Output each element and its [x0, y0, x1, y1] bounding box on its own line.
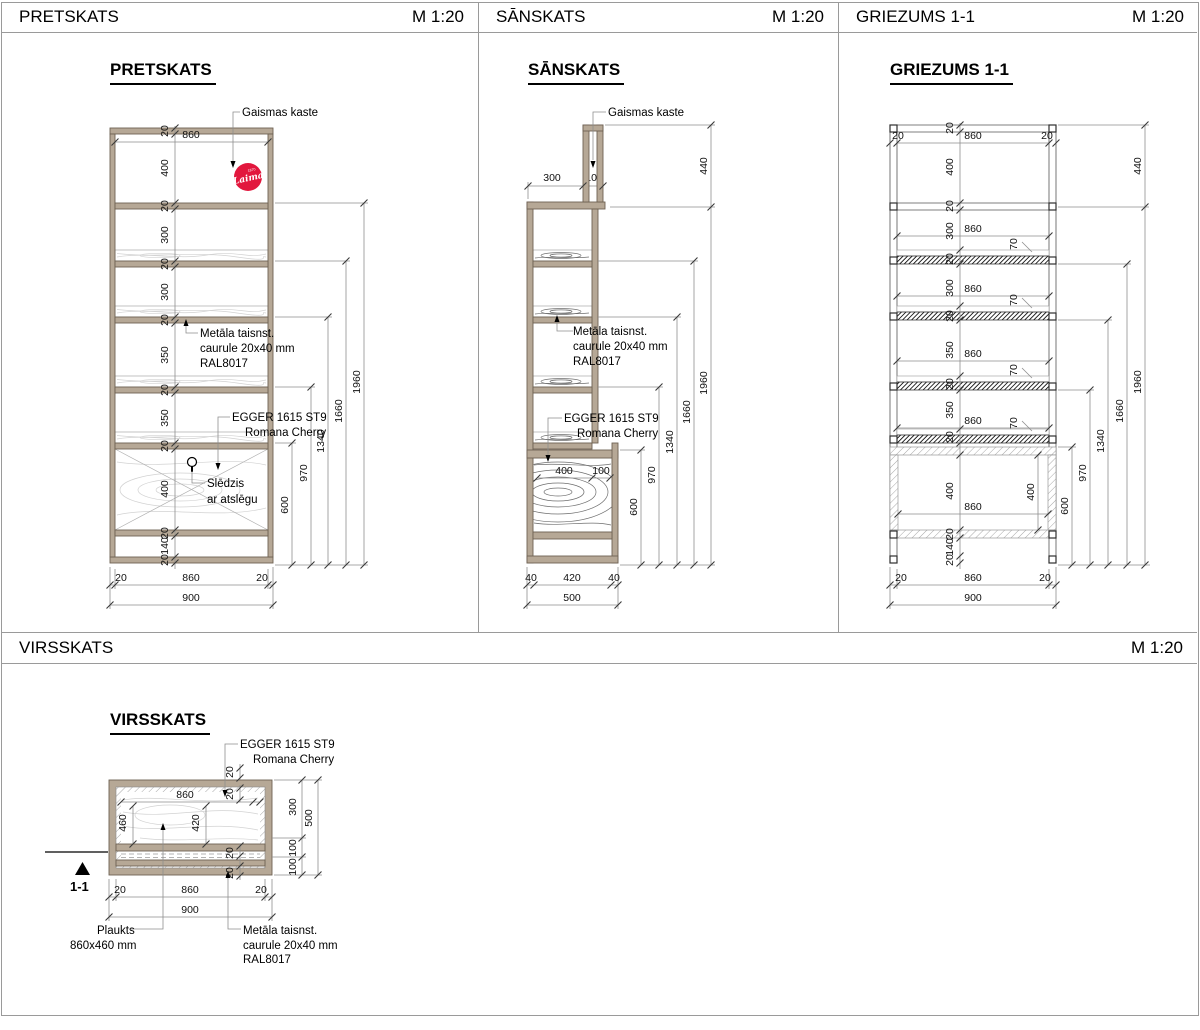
dim-label: 20	[224, 766, 236, 778]
annotation-egger: EGGER 1615 ST9	[240, 739, 335, 751]
annotation-metala: Metāla taisnst.	[200, 328, 274, 340]
dim-label: 300	[944, 279, 956, 297]
dim-label: 860	[181, 884, 199, 896]
dim-label: 300	[543, 172, 561, 184]
dim-label: 40	[608, 572, 620, 584]
annotation-metala: Metāla taisnst.	[573, 326, 647, 338]
dim-label: 140	[159, 537, 171, 555]
dim-label: 400	[159, 159, 171, 177]
dim-label: 20	[895, 572, 907, 584]
dim-label: 600	[628, 498, 640, 516]
pretskats-view: Laima 1870 860 20 400 20 300 20 300 20 3…	[107, 107, 369, 609]
annotation-egger: Romana Cherry	[253, 754, 334, 766]
dim-label: 400	[1025, 483, 1037, 501]
dim-label: 400	[944, 482, 956, 500]
dim-label: 40	[525, 572, 537, 584]
virsskats-view: 860 460 420 20 20 20 20 300 100 100 500 …	[45, 739, 338, 966]
dim-label: 860	[182, 572, 200, 584]
dim-label: 600	[1059, 497, 1071, 515]
annotation-egger: Romana Cherry	[245, 427, 326, 439]
dim-label: 20	[159, 258, 171, 270]
dim-label: 20	[944, 200, 956, 212]
dim-label: 300	[159, 226, 171, 244]
section-label: 1-1	[70, 879, 89, 894]
dim-label: 1660	[681, 400, 693, 424]
dim-label: 860	[964, 283, 982, 295]
dim-label: 100	[287, 839, 299, 857]
dim-label: 420	[190, 814, 202, 832]
dim-label: 860	[182, 129, 200, 141]
dim-label: 20	[256, 572, 268, 584]
dim-label: 400	[555, 465, 573, 477]
annotation-plaukts: 860x460 mm	[70, 940, 136, 952]
dim-label: 860	[964, 223, 982, 235]
dim-label: 20	[892, 130, 904, 142]
dim-label: 140	[944, 538, 956, 556]
dim-label: 300	[159, 283, 171, 301]
drawing-canvas: Laima 1870 860 20 400 20 300 20 300 20 3…	[0, 0, 1200, 1030]
dim-label: 500	[563, 592, 581, 604]
dim-label: 350	[159, 346, 171, 364]
griezums-view: 20 860 20 20 400 20 300 20 300 20 350 20…	[887, 122, 1151, 610]
dim-label: 20	[944, 378, 956, 390]
virsskats-rail-1	[116, 844, 265, 851]
dim-label: 20	[944, 431, 956, 443]
dim-label: 20	[114, 884, 126, 896]
annotation-metala: caurule 20x40 mm	[200, 343, 295, 355]
annotation-metala: RAL8017	[573, 356, 621, 368]
annotation-metala: Metāla taisnst.	[243, 925, 317, 937]
lock-symbol	[188, 458, 197, 473]
dim-label: 420	[563, 572, 581, 584]
dim-label: 20	[255, 884, 267, 896]
dim-label: 300	[944, 222, 956, 240]
dim-label: 1660	[1114, 399, 1126, 423]
annotation-egger: EGGER 1615 ST9	[564, 413, 659, 425]
griezums-width-labels: 860 860 860 860 860	[964, 223, 982, 513]
dim-label: 970	[646, 466, 658, 484]
dim-label: 1960	[698, 371, 710, 395]
dim-label: 20	[944, 554, 956, 566]
dim-label: 20	[1039, 572, 1051, 584]
dim-label: 20	[159, 554, 171, 566]
dim-label: 440	[698, 157, 710, 175]
section-arrow-icon	[75, 862, 90, 875]
dim-label: 70	[1008, 294, 1020, 306]
dim-label: 860	[964, 501, 982, 513]
annotation-egger: EGGER 1615 ST9	[232, 412, 327, 424]
drawing-sheet: PRETSKATS M 1:20 SĀNSKATS M 1:20 GRIEZUM…	[0, 0, 1200, 1030]
dim-label: 1960	[1132, 370, 1144, 394]
dim-label: 20	[159, 125, 171, 137]
dim-label: 20	[224, 847, 236, 859]
dim-label: 860	[964, 572, 982, 584]
sanskats-top-dim-line	[528, 182, 603, 199]
pretskats-leader-lines	[186, 112, 240, 483]
dim-label: 350	[944, 401, 956, 419]
dim-label: 900	[182, 592, 200, 604]
laima-logo: Laima 1870	[231, 163, 264, 191]
arrow-down-icon	[216, 463, 221, 470]
annotation-metala: RAL8017	[200, 358, 248, 370]
dim-label: 900	[181, 904, 199, 916]
annotation-metala: caurule 20x40 mm	[573, 341, 668, 353]
dim-label: 970	[298, 464, 310, 482]
dim-label: 70	[1008, 364, 1020, 376]
dim-label: 20	[159, 200, 171, 212]
dim-label: 20	[944, 122, 956, 134]
dim-label: 1340	[1095, 429, 1107, 453]
arrow-down-icon	[231, 161, 236, 168]
dim-label: 400	[159, 480, 171, 498]
dim-label: 860	[964, 130, 982, 142]
dim-label: 70	[1008, 238, 1020, 250]
dim-label: 20	[944, 253, 956, 265]
dim-label: 20	[1041, 130, 1053, 142]
sanskats-cumulative-labels: 600 970 1340 1660 1960	[628, 371, 710, 516]
annotation-metala: RAL8017	[243, 954, 291, 966]
sanskats-view: 300 100	[496, 107, 715, 609]
dim-label: 20	[944, 310, 956, 322]
dim-label: 860	[176, 789, 194, 801]
dim-label: 1340	[664, 430, 676, 454]
dim-label: 460	[117, 814, 129, 832]
dim-label: 1960	[351, 370, 363, 394]
dim-label: 350	[159, 409, 171, 427]
dim-label: 20	[159, 384, 171, 396]
annotation-gaismas: Gaismas kaste	[242, 107, 318, 119]
annotation-egger: Romana Cherry	[577, 428, 658, 440]
dim-label: 500	[303, 809, 315, 827]
section-marker-1-1: 1-1	[45, 852, 108, 894]
dim-label: 900	[964, 592, 982, 604]
dim-label: 400	[944, 158, 956, 176]
annotation-sledzis: ar atslēgu	[207, 494, 258, 506]
dim-label: 20	[159, 314, 171, 326]
dim-label: 20	[159, 440, 171, 452]
annotation-plaukts: Plaukts	[97, 925, 135, 937]
dim-label: 1660	[333, 399, 345, 423]
dim-label: 20	[159, 527, 171, 539]
dim-label: 70	[1008, 417, 1020, 429]
annotation-metala: caurule 20x40 mm	[243, 940, 338, 952]
dim-label: 600	[279, 496, 291, 514]
annotation-gaismas: Gaismas kaste	[608, 107, 684, 119]
dim-label: 100	[592, 465, 610, 477]
dim-label: 20	[115, 572, 127, 584]
dim-label: 350	[944, 341, 956, 359]
dim-label: 860	[964, 415, 982, 427]
dim-label: 970	[1077, 464, 1089, 482]
annotation-sledzis: Slēdzis	[207, 478, 244, 490]
dim-label: 20	[944, 528, 956, 540]
arrow-down-icon	[591, 161, 596, 168]
dim-label: 300	[287, 798, 299, 816]
griezums-chain-labels: 20 400 20 300 20 300 20 350 20 350 20 40…	[944, 122, 956, 566]
dim-label: 100	[287, 858, 299, 876]
dim-label: 860	[964, 348, 982, 360]
dim-label: 440	[1132, 157, 1144, 175]
griezums-shelf-thickness-labels: 70 70 70 70	[1008, 238, 1020, 429]
